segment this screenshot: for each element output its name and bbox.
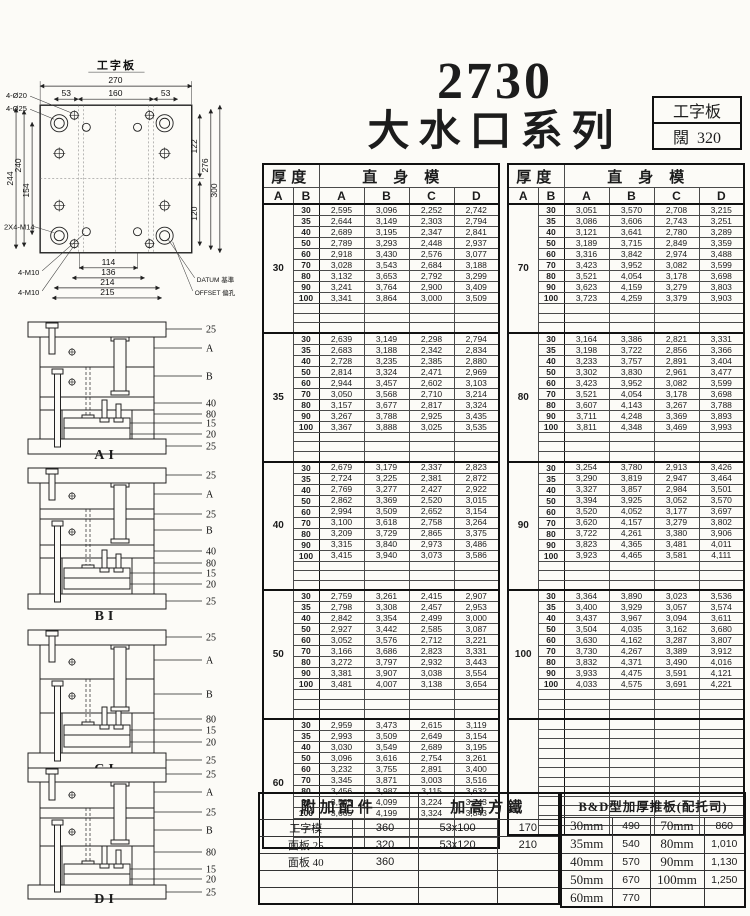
price-cell: 3,576 [364,635,409,646]
screw-holes [53,110,170,249]
price-cell: 3,554 [454,668,499,679]
thickness-b-value: 40 [293,484,319,495]
price-cell [364,580,409,590]
price-cell: 3,073 [409,550,454,561]
price-cell: 2,710 [409,388,454,399]
guide-holes [51,115,173,245]
price-cell [409,699,454,709]
callout-label: 20 [206,430,216,441]
price-cell: 3,755 [364,764,409,775]
price-cell: 2,448 [409,238,454,249]
price-cell: 3,195 [454,742,499,753]
price-cell: 3,100 [319,517,364,528]
page-title-series: 大水口系列 [330,110,660,154]
price-cell: 3,038 [409,668,454,679]
price-cell: 3,400 [454,764,499,775]
thickness-a-value: 50 [263,590,293,719]
price-cell: 3,423 [564,260,609,271]
price-cell: 2,754 [409,753,454,764]
price-cell: 2,769 [319,484,364,495]
accessory-value: 360 [352,854,418,871]
price-cell [609,690,654,700]
price-cell: 3,686 [364,646,409,657]
price-cell [319,580,364,590]
price-cell: 3,549 [364,742,409,753]
price-cell [364,323,409,333]
price-cell [564,690,609,700]
accessory-value [352,871,418,888]
price-cell [699,709,744,719]
thickness-b-value: 80 [293,528,319,539]
bd-thick-ejector-table: B&D型加厚推板(配托司) 30mm49070mm86035mm54080mm1… [560,792,746,908]
thickness-b-value: 30 [293,333,319,345]
price-cell: 3,486 [454,539,499,550]
accessory-name: 面板 25 [259,837,352,854]
price-cell [409,323,454,333]
price-table-right: 厚度 直身模 A B A B C D 70303,0513,5702,7083,… [507,163,745,836]
thickness-a-value: 70 [508,204,538,333]
price-cell [319,313,364,323]
price-cell: 2,994 [319,506,364,517]
callout-label: 25 [206,808,216,819]
price-cell: 3,179 [364,462,409,474]
price-cell: 3,811 [564,421,609,432]
price-cell [699,729,744,739]
price-cell: 3,586 [454,550,499,561]
price-cell: 3,394 [564,495,609,506]
price-cell: 3,261 [454,753,499,764]
thickness-b-value: 70 [293,517,319,528]
price-cell: 3,015 [454,495,499,506]
dim-122: 122 [189,139,199,153]
price-cell: 3,691 [654,679,699,690]
price-cell [409,304,454,314]
thickness-b-value: 100 [538,421,564,432]
thickness-b-value: 90 [293,282,319,293]
thickness-b-value [538,719,564,729]
price-cell: 3,030 [319,742,364,753]
price-cell [409,313,454,323]
price-cell [319,451,364,461]
price-cell [654,777,699,787]
price-cell [364,571,409,581]
price-cell: 3,830 [609,366,654,377]
drawing-title: 工字板 [97,58,136,72]
price-cell [564,709,609,719]
price-cell [609,571,654,581]
thickness-b-value [538,304,564,314]
price-cell: 3,149 [364,216,409,227]
thickness-b-value: 35 [538,344,564,355]
price-cell: 3,331 [699,333,744,345]
header-col-d: D [454,188,499,205]
price-cell: 3,929 [609,602,654,613]
price-cell [699,580,744,590]
price-cell: 3,324 [454,399,499,410]
price-cell [409,432,454,442]
thickness-b-value: 80 [538,528,564,539]
price-cell [364,432,409,442]
price-cell: 3,264 [454,517,499,528]
price-cell: 3,443 [454,657,499,668]
plate-info-box: 工字板 闊320 [652,96,742,150]
price-cell: 4,465 [609,550,654,561]
price-cell: 3,380 [654,528,699,539]
price-cell: 3,823 [564,539,609,550]
mold-diagram-di: 25A25B80152025 DI [6,766,250,916]
price-cell [654,432,699,442]
callout-label: 15 [206,569,216,580]
dim-53-left: 53 [62,88,72,98]
header-b: B [538,188,564,205]
thickness-b-value: 100 [293,679,319,690]
riser-value [497,887,559,904]
price-cell: 2,821 [654,333,699,345]
price-cell: 3,952 [609,260,654,271]
bd-size: 35mm [561,835,612,853]
price-cell: 4,007 [364,679,409,690]
thickness-b-value: 80 [538,657,564,668]
price-cell: 2,973 [409,539,454,550]
thickness-b-value: 80 [293,399,319,410]
price-cell: 3,591 [654,668,699,679]
price-cell: 3,052 [319,635,364,646]
price-cell [319,432,364,442]
price-cell [364,313,409,323]
thickness-a-value: 100 [508,590,538,719]
thickness-b-value: 40 [538,613,564,624]
accessories-title: 附加配件 [259,793,418,820]
thickness-b-value: 60 [538,506,564,517]
price-cell: 3,235 [364,355,409,366]
price-cell: 3,780 [609,462,654,474]
price-cell: 3,189 [564,238,609,249]
thickness-b-value [538,758,564,768]
thickness-b-value: 30 [293,590,319,602]
price-cell: 3,359 [699,238,744,249]
price-cell: 3,509 [454,293,499,304]
thickness-b-value: 30 [538,204,564,216]
price-cell: 3,000 [409,293,454,304]
price-cell: 3,177 [654,506,699,517]
price-cell [319,442,364,452]
mold-plate [40,782,154,808]
accessories-table: 附加配件 加高方鐵 工字模36053x100170面板 2532053x1202… [258,792,560,905]
price-cell: 3,606 [609,216,654,227]
callout-label: 25 [206,471,216,482]
price-cell: 2,689 [319,227,364,238]
price-cell: 3,345 [319,775,364,786]
thickness-b-value [538,748,564,758]
thickness-b-value: 50 [293,495,319,506]
price-cell [654,699,699,709]
mold-diagram-ai: 25AB4080152025 AI [6,318,250,463]
price-cell: 4,162 [609,635,654,646]
mold-diagram-di-label: DI [36,892,176,908]
header-thickness: 厚度 [263,164,319,188]
price-cell: 3,857 [609,484,654,495]
dim-270: 270 [108,75,122,85]
mold-plate [64,578,130,589]
thickness-b-value [293,571,319,581]
price-cell: 2,823 [409,646,454,657]
price-cell [454,571,499,581]
price-cell: 3,477 [699,366,744,377]
price-cell [364,690,409,700]
price-cell: 3,214 [454,388,499,399]
price-cell: 3,341 [319,293,364,304]
thickness-b-value: 70 [293,775,319,786]
price-cell [454,699,499,709]
price-cell: 4,054 [609,271,654,282]
thickness-b-value: 30 [538,462,564,474]
thickness-b-value: 100 [538,293,564,304]
price-cell [699,571,744,581]
price-cell: 3,473 [364,719,409,731]
thickness-b-value: 100 [293,293,319,304]
header-col-a: A [564,188,609,205]
dim-154: 154 [21,183,31,197]
accessory-name [259,887,352,904]
price-cell: 3,435 [454,410,499,421]
price-cell: 3,415 [319,550,364,561]
thickness-b-value: 50 [538,495,564,506]
price-cell: 3,722 [564,528,609,539]
price-cell: 3,607 [564,399,609,410]
price-cell: 3,289 [699,227,744,238]
price-cell [654,313,699,323]
price-cell: 3,925 [609,495,654,506]
price-cell: 3,620 [564,517,609,528]
price-cell: 3,871 [364,775,409,786]
thickness-b-value [538,729,564,739]
price-cell: 3,430 [364,249,409,260]
price-cell: 3,426 [699,462,744,474]
dim-114: 114 [102,257,116,267]
mold-plate [40,509,154,519]
price-cell [564,571,609,581]
price-cell: 3,423 [564,377,609,388]
price-cell: 2,792 [409,271,454,282]
price-cell: 3,409 [454,282,499,293]
price-cell: 3,198 [564,344,609,355]
price-cell [564,719,609,729]
bd-price: 670 [612,871,650,889]
price-cell [654,709,699,719]
thickness-b-value [293,709,319,719]
price-cell [654,561,699,571]
price-cell: 3,730 [564,646,609,657]
thickness-b-value [538,580,564,590]
callout-label: B [206,826,213,837]
thickness-b-value: 50 [538,366,564,377]
thickness-b-value [538,451,564,461]
price-cell: 3,166 [319,646,364,657]
price-cell [654,690,699,700]
price-cell [609,709,654,719]
thickness-b-value: 35 [293,344,319,355]
price-cell: 2,457 [409,602,454,613]
dim-160: 160 [108,88,122,98]
price-cell: 2,953 [454,602,499,613]
thickness-b-value [293,690,319,700]
price-cell: 2,499 [409,613,454,624]
price-cell [409,709,454,719]
price-cell: 3,940 [364,550,409,561]
mold-plate [132,713,154,753]
price-cell: 2,252 [409,204,454,216]
thickness-b-value: 70 [538,388,564,399]
price-cell: 4,121 [699,668,744,679]
price-cell: 3,488 [699,249,744,260]
hole-label-d25: 4-Ø25 [6,104,27,113]
price-cell [364,442,409,452]
mold-plate [40,337,154,367]
price-cell [609,699,654,709]
price-cell: 3,623 [564,282,609,293]
price-cell [609,442,654,452]
price-cell: 2,347 [409,227,454,238]
callout-label: 25 [206,633,216,644]
riser-value: 170 [497,820,559,837]
thickness-b-value: 35 [293,473,319,484]
title-block: 2730 大水口系列 [330,56,660,154]
price-cell: 3,279 [654,517,699,528]
price-cell: 3,404 [699,355,744,366]
price-cell [564,748,609,758]
price-cell: 3,501 [699,484,744,495]
price-cell [564,323,609,333]
price-cell: 3,267 [319,410,364,421]
hole-label-d20: 4-Ø20 [6,91,27,100]
thickness-b-value: 30 [538,590,564,602]
callout-label: 20 [206,738,216,749]
price-cell [319,690,364,700]
price-cell: 4,259 [609,293,654,304]
mold-plate [64,428,130,439]
price-cell: 3,225 [364,473,409,484]
price-cell: 3,254 [564,462,609,474]
price-cell: 3,490 [654,657,699,668]
price-cell [609,739,654,749]
thickness-b-value [538,442,564,452]
price-cell [654,304,699,314]
bd-size [650,889,704,907]
thickness-b-value: 35 [293,216,319,227]
price-cell: 3,157 [319,399,364,410]
price-cell: 3,354 [364,613,409,624]
price-cell: 3,630 [564,635,609,646]
price-cell: 3,028 [319,260,364,271]
price-cell: 3,272 [319,657,364,668]
bd-price: 1,250 [704,871,745,889]
bd-price: 1,130 [704,853,745,871]
price-cell: 2,708 [654,204,699,216]
price-cell: 3,819 [609,473,654,484]
price-cell: 3,521 [564,271,609,282]
header-col-b: B [364,188,409,205]
header-straight-mold: 直身模 [564,164,744,188]
price-cell [609,323,654,333]
thickness-b-value: 80 [293,657,319,668]
price-cell: 3,923 [564,550,609,561]
price-cell: 3,893 [699,410,744,421]
price-cell [699,561,744,571]
price-cell: 4,052 [609,506,654,517]
mold-plate [132,558,154,594]
price-cell: 3,680 [699,624,744,635]
price-cell: 4,575 [609,679,654,690]
thickness-b-value: 100 [293,421,319,432]
price-cell [564,777,609,787]
price-cell: 2,937 [454,238,499,249]
price-cell: 3,677 [364,399,409,410]
price-cell: 3,574 [699,602,744,613]
price-cell: 3,568 [364,388,409,399]
thickness-b-value: 90 [538,410,564,421]
dim-300: 300 [209,183,219,197]
bd-size: 60mm [561,889,612,907]
price-cell: 2,872 [454,473,499,484]
price-cell: 2,932 [409,657,454,668]
price-cell: 3,164 [564,333,609,345]
price-cell [409,571,454,581]
price-cell [319,571,364,581]
dim-136: 136 [101,267,115,277]
price-cell: 3,864 [364,293,409,304]
price-cell: 3,215 [699,204,744,216]
price-cell [409,451,454,461]
thickness-b-value: 35 [538,602,564,613]
price-cell: 3,952 [609,377,654,388]
price-cell: 3,316 [564,249,609,260]
thickness-b-value: 70 [538,517,564,528]
price-cell: 3,764 [364,282,409,293]
price-cell: 4,221 [699,679,744,690]
header-col-d: D [699,188,744,205]
callout-label: 15 [206,419,216,430]
price-cell: 2,842 [319,613,364,624]
thickness-b-value: 90 [538,282,564,293]
riser-value [497,871,559,888]
price-cell [609,313,654,323]
price-cell: 3,967 [609,613,654,624]
accessory-name: 工字模 [259,820,352,837]
price-cell: 3,697 [699,506,744,517]
price-cell [609,451,654,461]
price-cell: 2,758 [409,517,454,528]
price-cell: 2,679 [319,462,364,474]
thickness-b-value: 80 [293,271,319,282]
price-cell: 4,033 [564,679,609,690]
price-cell [319,709,364,719]
price-cell [564,739,609,749]
thickness-b-value [538,561,564,571]
price-cell: 4,267 [609,646,654,657]
riser-value [497,854,559,871]
price-cell: 2,862 [319,495,364,506]
thickness-b-value [293,561,319,571]
price-cell [409,561,454,571]
price-cell [654,758,699,768]
riser-size: 53x120 [418,837,497,854]
price-cell: 2,298 [409,333,454,345]
price-cell: 3,788 [699,399,744,410]
price-cell: 3,086 [564,216,609,227]
price-cell: 3,536 [699,590,744,602]
thickness-b-value [538,777,564,787]
price-cell: 2,712 [409,635,454,646]
